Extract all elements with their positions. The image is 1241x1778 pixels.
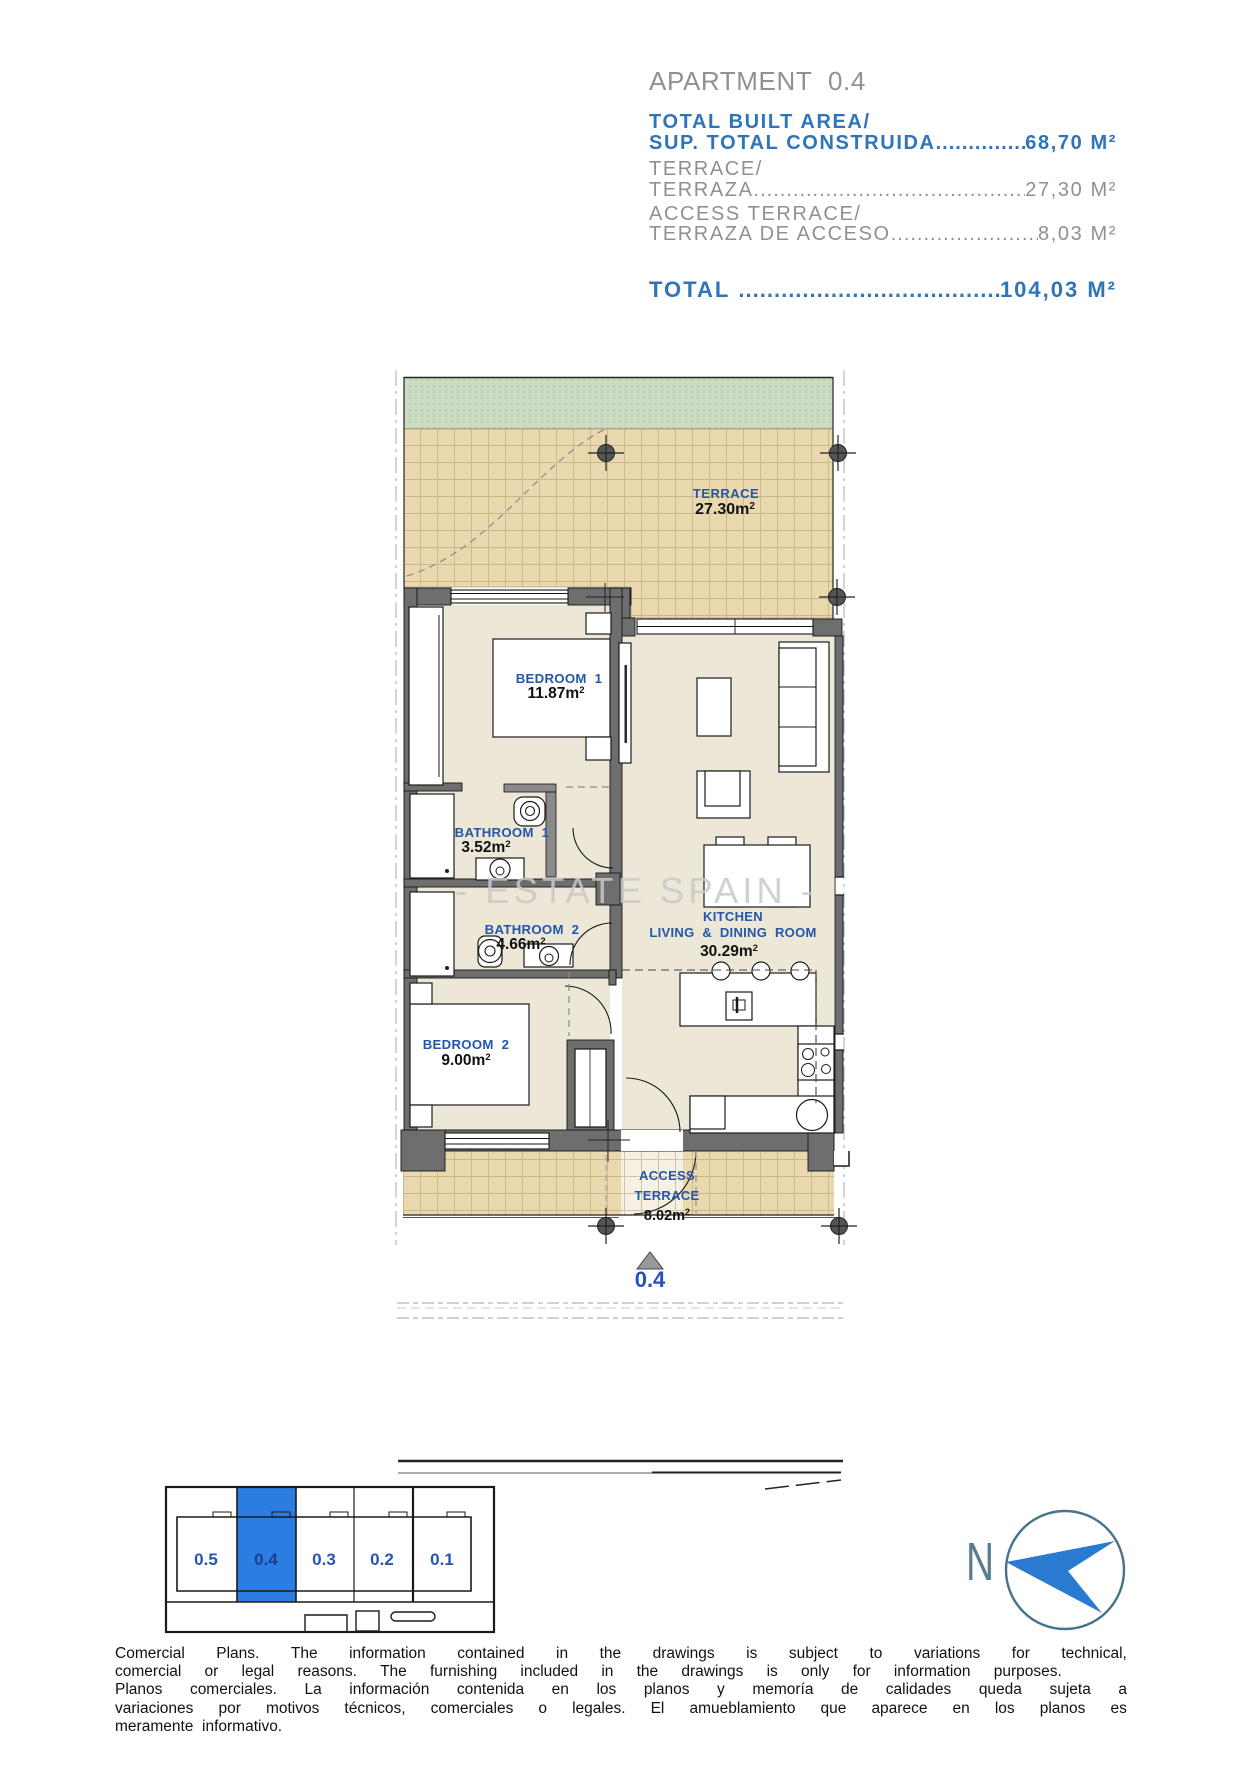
svg-text:ACCESS: ACCESS	[639, 1168, 695, 1183]
svg-text:N: N	[966, 1531, 994, 1592]
svg-text:TERRACE: TERRACE	[693, 486, 759, 501]
svg-text:0.4: 0.4	[254, 1550, 278, 1569]
svg-text:0.1: 0.1	[430, 1550, 454, 1569]
svg-text:KITCHEN: KITCHEN	[703, 909, 763, 924]
svg-text:TERRACE: TERRACE	[635, 1188, 700, 1203]
svg-text:BATHROOM 1: BATHROOM 1	[455, 825, 550, 840]
svg-text:BATHROOM 2: BATHROOM 2	[485, 922, 580, 937]
svg-text:11.87m2: 11.87m2	[527, 685, 584, 702]
svg-text:0.3: 0.3	[312, 1550, 336, 1569]
svg-text:LIVING & DINING ROOM: LIVING & DINING ROOM	[649, 925, 816, 940]
svg-text:3.52m2: 3.52m2	[461, 839, 510, 856]
svg-text:27.30m2: 27.30m2	[695, 501, 755, 518]
svg-text:BEDROOM 1: BEDROOM 1	[516, 671, 603, 686]
svg-text:0.2: 0.2	[370, 1550, 394, 1569]
svg-text:8.02m2: 8.02m2	[644, 1207, 690, 1224]
svg-text:30.29m2: 30.29m2	[700, 943, 758, 960]
svg-text:4.66m2: 4.66m2	[496, 936, 545, 953]
svg-text:- ESTATE SPAIN -: - ESTATE SPAIN -	[455, 870, 817, 911]
svg-text:0.5: 0.5	[194, 1550, 218, 1569]
svg-text:0.4: 0.4	[635, 1267, 666, 1292]
svg-text:9.00m2: 9.00m2	[441, 1052, 490, 1069]
svg-text:BEDROOM 2: BEDROOM 2	[423, 1037, 510, 1052]
